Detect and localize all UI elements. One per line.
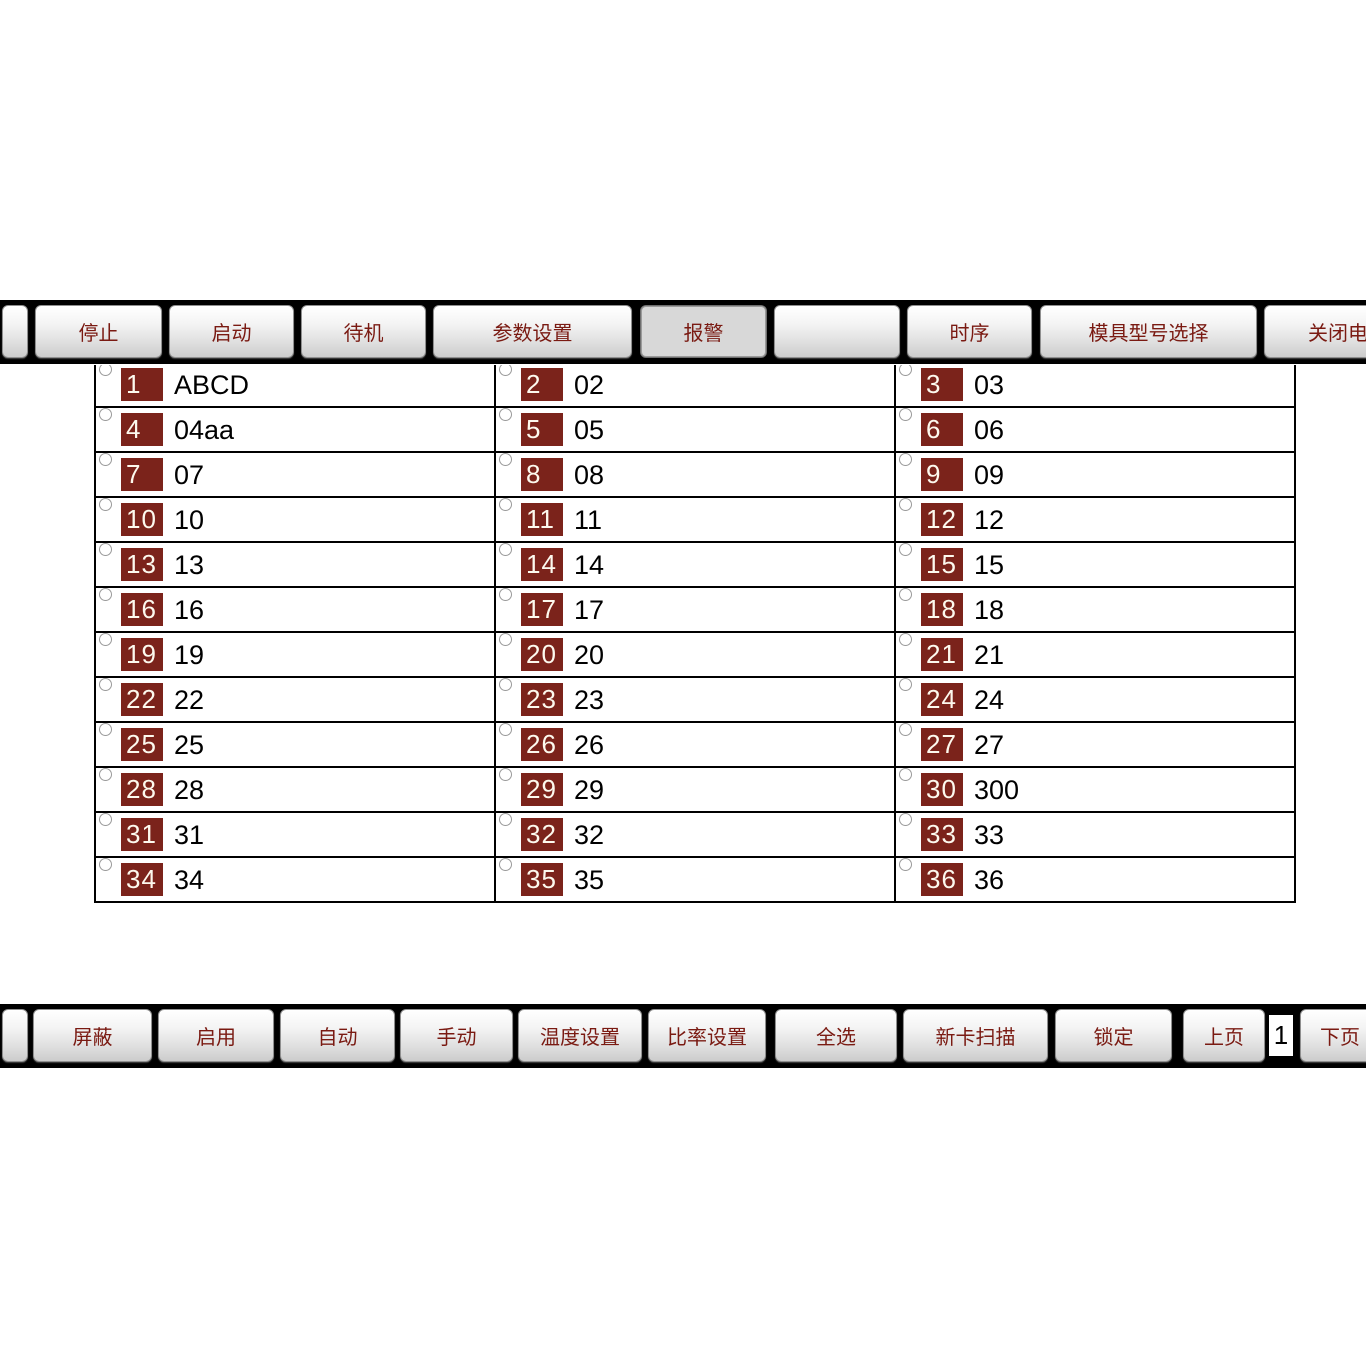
channel-cell[interactable]: 909: [896, 453, 1296, 498]
mold-model-select-button[interactable]: 模具型号选择: [1040, 305, 1257, 358]
channel-cell[interactable]: 1ABCD: [96, 365, 496, 408]
channel-cell[interactable]: 1616: [96, 588, 496, 633]
start-button[interactable]: 启动: [169, 305, 294, 358]
channel-radio[interactable]: [99, 365, 112, 376]
channel-radio[interactable]: [99, 588, 112, 601]
channel-radio[interactable]: [899, 768, 912, 781]
channel-number-badge: 26: [521, 728, 563, 761]
channel-number-badge: 30: [921, 773, 963, 806]
bottom-page-input[interactable]: [1269, 1015, 1293, 1056]
channel-number-badge: 27: [921, 728, 963, 761]
channel-radio[interactable]: [99, 858, 112, 871]
channel-cell[interactable]: 2727: [896, 723, 1296, 768]
channel-label: 34: [174, 865, 204, 896]
channel-number-badge: 32: [521, 818, 563, 851]
channel-number-badge: 13: [121, 548, 163, 581]
channel-cell[interactable]: 808: [496, 453, 896, 498]
timing-button[interactable]: 时序: [907, 305, 1032, 358]
channel-number-badge: 7: [121, 458, 163, 491]
channel-label: 22: [174, 685, 204, 716]
channel-cell[interactable]: 303: [896, 365, 1296, 408]
channel-cell[interactable]: 2626: [496, 723, 896, 768]
prev-page-button[interactable]: 上页: [1183, 1009, 1265, 1062]
channel-radio[interactable]: [899, 365, 912, 376]
channel-radio[interactable]: [899, 453, 912, 466]
mask-button[interactable]: 屏蔽: [33, 1009, 152, 1062]
channel-label: 21: [974, 640, 1004, 671]
channel-radio[interactable]: [99, 498, 112, 511]
controls-row: 名称 保存 导入 返回 上页 1 下页: [0, 920, 1366, 990]
channel-radio[interactable]: [899, 408, 912, 421]
channel-radio[interactable]: [899, 813, 912, 826]
param-settings-button[interactable]: 参数设置: [433, 305, 632, 358]
channel-label: 33: [974, 820, 1004, 851]
channel-label: 36: [974, 865, 1004, 896]
channel-number-badge: 20: [521, 638, 563, 671]
channel-radio[interactable]: [899, 588, 912, 601]
channel-cell[interactable]: 3333: [896, 813, 1296, 858]
channel-number-badge: 31: [121, 818, 163, 851]
channel-label: 31: [174, 820, 204, 851]
channel-table: 1ABCD202303404aa505606707808909101011111…: [94, 365, 1297, 904]
channel-label: 03: [974, 370, 1004, 401]
channel-cell[interactable]: 3636: [896, 858, 1296, 903]
edge-partial-button[interactable]: [2, 305, 28, 358]
channel-label: 06: [974, 415, 1004, 446]
channel-label: 16: [174, 595, 204, 626]
channel-label: 19: [174, 640, 204, 671]
channel-label: 15: [974, 550, 1004, 581]
channel-radio[interactable]: [499, 408, 512, 421]
channel-radio[interactable]: [99, 813, 112, 826]
channel-number-badge: 17: [521, 593, 563, 626]
channel-label: ABCD: [174, 370, 249, 401]
channel-radio[interactable]: [499, 678, 512, 691]
channel-radio[interactable]: [99, 768, 112, 781]
channel-label: 25: [174, 730, 204, 761]
alarm-button[interactable]: 报警: [640, 305, 767, 358]
channel-cell[interactable]: 2424: [896, 678, 1296, 723]
enable-button[interactable]: 启用: [158, 1009, 274, 1062]
bottom-toolbar: 屏蔽启用自动手动温度设置比率设置全选新卡扫描锁定上页下页: [0, 1004, 1366, 1068]
channel-cell[interactable]: 2121: [896, 633, 1296, 678]
channel-label: 18: [974, 595, 1004, 626]
channel-label: 12: [974, 505, 1004, 536]
channel-label: 05: [574, 415, 604, 446]
channel-label: 35: [574, 865, 604, 896]
lock-button[interactable]: 锁定: [1055, 1009, 1172, 1062]
channel-number-badge: 5: [521, 413, 563, 446]
next-page-button[interactable]: 下页: [1300, 1009, 1366, 1062]
channel-radio[interactable]: [99, 408, 112, 421]
channel-number-badge: 36: [921, 863, 963, 896]
channel-number-badge: 9: [921, 458, 963, 491]
channel-cell[interactable]: 1313: [96, 543, 496, 588]
channel-label: 08: [574, 460, 604, 491]
channel-label: 27: [974, 730, 1004, 761]
channel-number-badge: 12: [921, 503, 963, 536]
channel-cell[interactable]: 707: [96, 453, 496, 498]
channel-radio[interactable]: [99, 453, 112, 466]
channel-number-badge: 11: [521, 503, 563, 536]
channel-label: 14: [574, 550, 604, 581]
channel-label: 11: [574, 505, 602, 536]
channel-cell[interactable]: 1717: [496, 588, 896, 633]
channel-radio[interactable]: [899, 678, 912, 691]
channel-radio[interactable]: [99, 723, 112, 736]
channel-number-badge: 4: [121, 413, 163, 446]
top-toolbar: 停止启动待机参数设置报警时序模具型号选择关闭电脑: [0, 300, 1366, 364]
channel-radio[interactable]: [499, 858, 512, 871]
ratio-settings-button[interactable]: 比率设置: [648, 1009, 766, 1062]
channel-number-badge: 15: [921, 548, 963, 581]
channel-radio[interactable]: [499, 633, 512, 646]
channel-cell[interactable]: 1818: [896, 588, 1296, 633]
new-card-scan-button[interactable]: 新卡扫描: [903, 1009, 1048, 1062]
channel-cell[interactable]: 2020: [496, 633, 896, 678]
channel-radio[interactable]: [499, 365, 512, 376]
channel-number-badge: 25: [121, 728, 163, 761]
channel-number-badge: 8: [521, 458, 563, 491]
channel-number-badge: 24: [921, 683, 963, 716]
channel-radio[interactable]: [499, 813, 512, 826]
channel-label: 10: [174, 505, 204, 536]
channel-cell[interactable]: 1919: [96, 633, 496, 678]
channel-number-badge: 29: [521, 773, 563, 806]
channel-cell[interactable]: 3131: [96, 813, 496, 858]
channel-cell[interactable]: 30300: [896, 768, 1296, 813]
channel-cell[interactable]: 2323: [496, 678, 896, 723]
auto-button[interactable]: 自动: [280, 1009, 395, 1062]
channel-number-badge: 22: [121, 683, 163, 716]
channel-label: 04aa: [174, 415, 234, 446]
channel-radio[interactable]: [499, 768, 512, 781]
channel-label: 13: [174, 550, 204, 581]
channel-cell[interactable]: 2828: [96, 768, 496, 813]
channel-label: 02: [574, 370, 604, 401]
machine-hmi-screen: 停止启动待机参数设置报警时序模具型号选择关闭电脑 1ABCD202303404a…: [0, 0, 1366, 1366]
edge-partial-button[interactable]: [2, 1009, 28, 1062]
channel-number-badge: 35: [521, 863, 563, 896]
temp-settings-button[interactable]: 温度设置: [518, 1009, 642, 1062]
channel-label: 26: [574, 730, 604, 761]
channel-number-badge: 33: [921, 818, 963, 851]
channel-radio[interactable]: [499, 588, 512, 601]
channel-radio[interactable]: [899, 858, 912, 871]
channel-cell[interactable]: 1515: [896, 543, 1296, 588]
shutdown-computer-button[interactable]: 关闭电脑: [1264, 305, 1366, 358]
channel-number-badge: 10: [121, 503, 163, 536]
channel-cell[interactable]: 1010: [96, 498, 496, 543]
channel-cell[interactable]: 2525: [96, 723, 496, 768]
channel-number-badge: 6: [921, 413, 963, 446]
channel-radio[interactable]: [899, 498, 912, 511]
blank-button[interactable]: [774, 305, 900, 358]
channel-label: 09: [974, 460, 1004, 491]
channel-number-badge: 18: [921, 593, 963, 626]
channel-cell[interactable]: 2222: [96, 678, 496, 723]
channel-label: 300: [974, 775, 1019, 806]
standby-button[interactable]: 待机: [301, 305, 426, 358]
channel-label: 32: [574, 820, 604, 851]
channel-number-badge: 1: [121, 368, 163, 401]
channel-number-badge: 3: [921, 368, 963, 401]
channel-label: 07: [174, 460, 204, 491]
channel-cell[interactable]: 1414: [496, 543, 896, 588]
channel-label: 20: [574, 640, 604, 671]
channel-radio[interactable]: [499, 498, 512, 511]
channel-radio[interactable]: [499, 723, 512, 736]
channel-number-badge: 21: [921, 638, 963, 671]
channel-radio[interactable]: [99, 633, 112, 646]
channel-cell[interactable]: 1212: [896, 498, 1296, 543]
channel-radio[interactable]: [899, 723, 912, 736]
manual-button[interactable]: 手动: [400, 1009, 513, 1062]
channel-cell[interactable]: 2929: [496, 768, 896, 813]
channel-radio[interactable]: [99, 543, 112, 556]
channel-number-badge: 2: [521, 368, 563, 401]
channel-radio[interactable]: [899, 633, 912, 646]
channel-cell[interactable]: 3232: [496, 813, 896, 858]
channel-radio[interactable]: [899, 543, 912, 556]
channel-label: 17: [574, 595, 604, 626]
select-all-button[interactable]: 全选: [775, 1009, 897, 1062]
channel-number-badge: 14: [521, 548, 563, 581]
channel-number-badge: 23: [521, 683, 563, 716]
stop-button[interactable]: 停止: [35, 305, 162, 358]
channel-cell[interactable]: 3434: [96, 858, 496, 903]
channel-cell[interactable]: 606: [896, 408, 1296, 453]
channel-radio[interactable]: [499, 453, 512, 466]
channel-label: 23: [574, 685, 604, 716]
channel-cell[interactable]: 1111: [496, 498, 896, 543]
channel-radio[interactable]: [499, 543, 512, 556]
channel-number-badge: 34: [121, 863, 163, 896]
channel-cell[interactable]: 404aa: [96, 408, 496, 453]
channel-label: 29: [574, 775, 604, 806]
channel-number-badge: 28: [121, 773, 163, 806]
channel-label: 28: [174, 775, 204, 806]
channel-label: 24: [974, 685, 1004, 716]
channel-radio[interactable]: [99, 678, 112, 691]
channel-cell[interactable]: 202: [496, 365, 896, 408]
channel-number-badge: 19: [121, 638, 163, 671]
channel-cell[interactable]: 3535: [496, 858, 896, 903]
channel-cell[interactable]: 505: [496, 408, 896, 453]
channel-number-badge: 16: [121, 593, 163, 626]
